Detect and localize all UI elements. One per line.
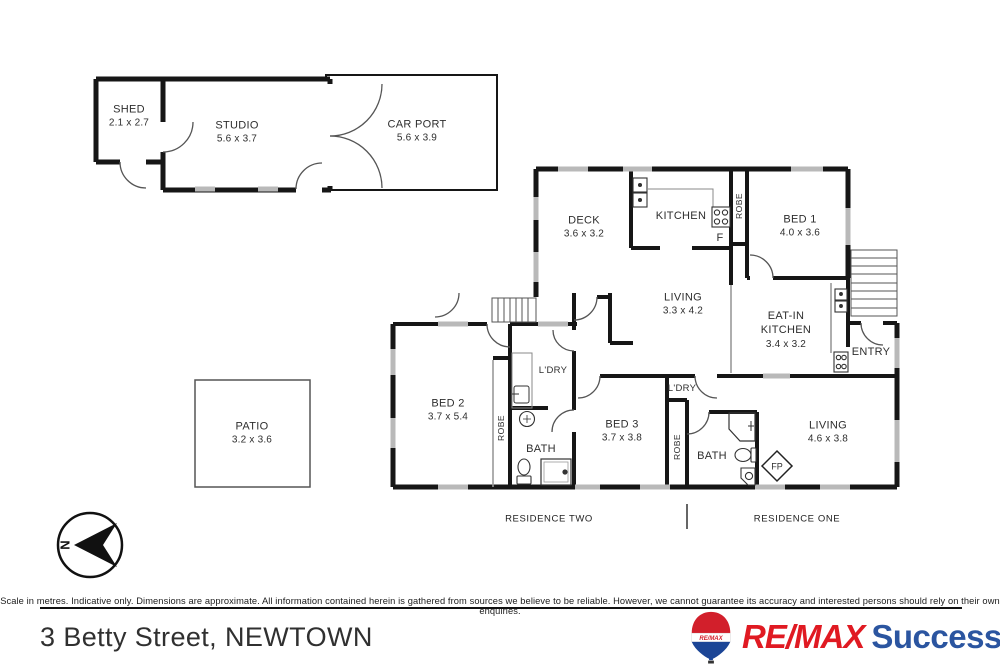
robe-label-bed3: ROBE (672, 434, 682, 460)
room-label-deck: DECK3.6 x 3.2 (564, 213, 604, 240)
entry-stairs (851, 250, 897, 316)
room-label-bed2: BED 23.7 x 5.4 (428, 396, 468, 423)
eatin-sink-icon (835, 289, 847, 312)
laundry-label-res2: L'DRY (539, 365, 567, 377)
robe-label-bed2: ROBE (496, 415, 506, 441)
remax-brand-text: RE/MAX (742, 618, 864, 656)
room-label-living-b: LIVING4.6 x 3.8 (808, 418, 848, 445)
kitchen-bench (648, 189, 713, 207)
room-label-carport: CAR PORT5.6 x 3.9 (387, 117, 446, 144)
bath-label-res1: BATH (697, 449, 727, 463)
floorplan-drawing: FP N (0, 0, 1000, 666)
bath2-basin-icon (520, 412, 535, 427)
laundry-trough-icon (512, 353, 532, 408)
property-address: 3 Betty Street, NEWTOWN (40, 622, 373, 653)
room-label-studio: STUDIO5.6 x 3.7 (215, 118, 258, 145)
residence-one-label: RESIDENCE ONE (754, 514, 840, 525)
eatin-stove-icon (834, 352, 848, 372)
bath1-shower-icon (729, 413, 755, 441)
room-label-shed: SHED2.1 x 2.7 (109, 102, 149, 129)
remax-logo: RE/MAX RE/MAX Success (686, 610, 1000, 664)
room-label-kitchen: KITCHEN (656, 209, 706, 223)
bath2-toilet-icon (517, 459, 531, 484)
svg-text:N: N (57, 540, 72, 549)
svg-text:FP: FP (771, 462, 783, 472)
remax-suffix-text: Success (871, 618, 1000, 656)
laundry-label-res1: L'DRY (668, 383, 696, 395)
residence-two-label: RESIDENCE TWO (505, 514, 593, 525)
floorplan-page: FP N SHED2.1 x 2.7 STUDIO5.6 x 3.7 CAR P… (0, 0, 1000, 666)
remax-balloon-icon: RE/MAX (686, 610, 736, 664)
fridge-label: F (716, 231, 723, 245)
room-label-eat-in-kitchen: EAT-IN KITCHEN3.4 x 3.2 (749, 309, 823, 351)
svg-text:RE/MAX: RE/MAX (699, 636, 723, 642)
room-label-living-a: LIVING3.3 x 4.2 (663, 290, 703, 317)
room-label-entry: ENTRY (852, 345, 891, 359)
room-label-bed1: BED 14.0 x 3.6 (780, 212, 820, 239)
footer-rule (40, 607, 962, 609)
bath2-shower-icon (541, 459, 571, 485)
bath-label-res2: BATH (526, 442, 556, 456)
kitchen-sink-icon (633, 178, 647, 207)
robe-label-bed1: ROBE (734, 193, 744, 219)
deck-stairs (492, 298, 536, 322)
fireplace-icon: FP (762, 451, 792, 481)
bath1-toilet-icon (735, 448, 756, 462)
outbuilding-walls (96, 79, 331, 190)
room-label-patio: PATIO3.2 x 3.6 (232, 419, 272, 446)
kitchen-stove-icon (712, 207, 730, 227)
compass-icon: N (57, 513, 122, 577)
room-label-bed3: BED 33.7 x 3.8 (602, 417, 642, 444)
bath1-basin-icon (741, 468, 755, 485)
